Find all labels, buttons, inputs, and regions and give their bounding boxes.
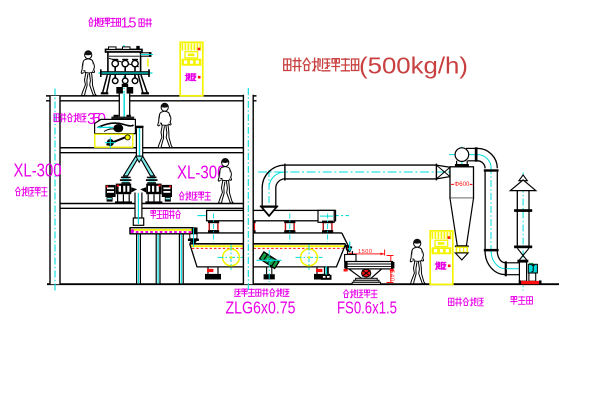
- svg-text:1500: 1500: [358, 249, 372, 255]
- svg-text:(500kg/h): (500kg/h): [359, 53, 468, 79]
- svg-text:ZLG6x0.75: ZLG6x0.75: [226, 298, 296, 318]
- svg-text:Φ600: Φ600: [454, 182, 470, 188]
- svg-text:540: 540: [388, 270, 394, 281]
- svg-text:XL-300: XL-300: [14, 160, 62, 180]
- svg-text:1.5: 1.5: [121, 16, 137, 32]
- svg-text:FS0.6x1.5: FS0.6x1.5: [337, 298, 397, 318]
